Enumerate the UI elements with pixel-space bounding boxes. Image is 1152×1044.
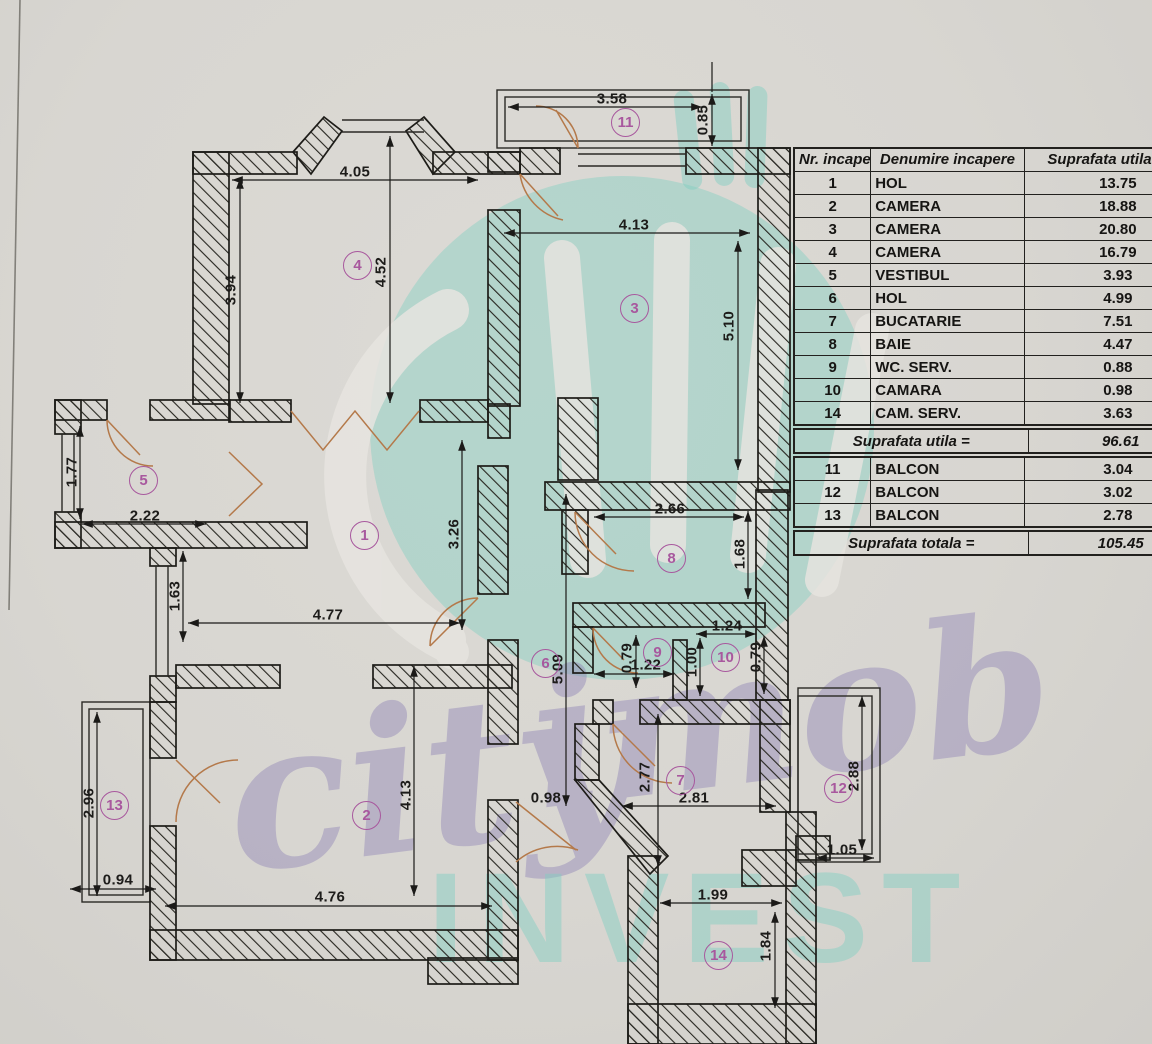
room-nr: 4 xyxy=(794,241,871,264)
dim-label: 1.84 xyxy=(758,931,775,961)
table-row: 1 HOL 13.75 xyxy=(794,172,1152,195)
room-name: HOL xyxy=(871,287,1024,310)
dim-label: 0.85 xyxy=(695,105,712,135)
room-number-badge: 2 xyxy=(352,801,381,830)
room-area: 3.04 xyxy=(1024,457,1152,481)
room-nr: 13 xyxy=(794,504,871,528)
dim-label: 4.13 xyxy=(619,217,649,234)
dim-label: 3.26 xyxy=(446,519,463,549)
dim-label: 2.22 xyxy=(130,508,160,525)
room-nr: 1 xyxy=(794,172,871,195)
room-name: BUCATARIE xyxy=(871,310,1024,333)
area-table-main: Nr. incapere Denumire incapere Suprafata… xyxy=(793,147,1152,426)
room-number-badge: 1 xyxy=(350,521,379,550)
dim-label: 3.94 xyxy=(223,275,240,305)
room-number-badge: 4 xyxy=(343,251,372,280)
room-number-badge: 14 xyxy=(704,941,733,970)
room-number-badge: 12 xyxy=(824,774,853,803)
room-nr: 14 xyxy=(794,402,871,426)
room-number-badge: 9 xyxy=(643,638,672,667)
paper-fold-line xyxy=(9,0,20,610)
dim-label: 4.77 xyxy=(313,607,343,624)
room-nr: 11 xyxy=(794,457,871,481)
room-number-badge: 10 xyxy=(711,643,740,672)
room-nr: 12 xyxy=(794,481,871,504)
dim-label: 3.58 xyxy=(597,91,627,108)
dim-label: 1.24 xyxy=(712,618,742,635)
dim-label: 1.63 xyxy=(167,581,184,611)
table-row: 6 HOL 4.99 xyxy=(794,287,1152,310)
area-table-subtotal: Suprafata utila = 96.61 xyxy=(793,428,1152,454)
scanned-floor-plan-page: city imob INVEST xyxy=(0,0,1152,1044)
room-nr: 6 xyxy=(794,287,871,310)
room-number-badge: 8 xyxy=(657,544,686,573)
table-row: 7 BUCATARIE 7.51 xyxy=(794,310,1152,333)
table-row: 8 BAIE 4.47 xyxy=(794,333,1152,356)
room-name: BALCON xyxy=(871,481,1024,504)
room-name: WC. SERV. xyxy=(871,356,1024,379)
room-name: CAMERA xyxy=(871,195,1024,218)
table-row: 2 CAMERA 18.88 xyxy=(794,195,1152,218)
subtotal-value: 96.61 xyxy=(1028,429,1152,453)
room-area: 7.51 xyxy=(1024,310,1152,333)
room-number-badge: 11 xyxy=(611,108,640,137)
area-table-total: Suprafata totala = 105.45 xyxy=(793,530,1152,556)
room-area: 3.93 xyxy=(1024,264,1152,287)
room-area: 13.75 xyxy=(1024,172,1152,195)
room-number-badge: 3 xyxy=(620,294,649,323)
dim-label: 0.94 xyxy=(103,872,133,889)
dim-label: 0.98 xyxy=(531,790,561,807)
col-header-area: Suprafata utila [mp] xyxy=(1024,148,1152,172)
room-area: 4.99 xyxy=(1024,287,1152,310)
room-nr: 10 xyxy=(794,379,871,402)
room-area: 4.47 xyxy=(1024,333,1152,356)
room-area: 0.88 xyxy=(1024,356,1152,379)
room-name: CAMARA xyxy=(871,379,1024,402)
col-header-name: Denumire incapere xyxy=(871,148,1024,172)
dim-label: 4.13 xyxy=(398,780,415,810)
table-row: 11 BALCON 3.04 xyxy=(794,457,1152,481)
area-table-balconies: 11 BALCON 3.04 12 BALCON 3.02 13 BALCON … xyxy=(793,456,1152,528)
room-name: HOL xyxy=(871,172,1024,195)
room-name: BALCON xyxy=(871,504,1024,528)
dim-label: 4.76 xyxy=(315,889,345,906)
total-value: 105.45 xyxy=(1028,531,1152,555)
room-nr: 7 xyxy=(794,310,871,333)
subtotal-label: Suprafata utila = xyxy=(794,429,1028,453)
room-nr: 9 xyxy=(794,356,871,379)
room-nr: 3 xyxy=(794,218,871,241)
table-row: 3 CAMERA 20.80 xyxy=(794,218,1152,241)
table-row: 9 WC. SERV. 0.88 xyxy=(794,356,1152,379)
dim-label: 5.10 xyxy=(721,311,738,341)
table-row: 12 BALCON 3.02 xyxy=(794,481,1152,504)
dim-label: 1.68 xyxy=(732,539,749,569)
room-number-badge: 13 xyxy=(100,791,129,820)
room-nr: 5 xyxy=(794,264,871,287)
table-row: 13 BALCON 2.78 xyxy=(794,504,1152,528)
table-row: 14 CAM. SERV. 3.63 xyxy=(794,402,1152,426)
room-name: BAIE xyxy=(871,333,1024,356)
dim-label: 1.05 xyxy=(827,842,857,859)
table-row: 10 CAMARA 0.98 xyxy=(794,379,1152,402)
dim-label: 1.99 xyxy=(698,887,728,904)
room-number-badge: 7 xyxy=(666,766,695,795)
room-name: CAM. SERV. xyxy=(871,402,1024,426)
col-header-nr: Nr. incapere xyxy=(794,148,871,172)
total-label: Suprafata totala = xyxy=(794,531,1028,555)
room-area: 3.02 xyxy=(1024,481,1152,504)
dim-label: 1.00 xyxy=(684,647,701,677)
room-name: VESTIBUL xyxy=(871,264,1024,287)
dim-label: 4.52 xyxy=(373,257,390,287)
room-name: CAMERA xyxy=(871,241,1024,264)
dim-label: 2.77 xyxy=(637,762,654,792)
dim-label: 4.05 xyxy=(340,164,370,181)
table-row: 5 VESTIBUL 3.93 xyxy=(794,264,1152,287)
room-number-badge: 6 xyxy=(531,649,560,678)
room-number-badge: 5 xyxy=(129,466,158,495)
dim-label: 2.66 xyxy=(655,501,685,518)
room-area: 20.80 xyxy=(1024,218,1152,241)
room-nr: 8 xyxy=(794,333,871,356)
room-area: 2.78 xyxy=(1024,504,1152,528)
room-area: 0.98 xyxy=(1024,379,1152,402)
room-area: 18.88 xyxy=(1024,195,1152,218)
room-area-table: Nr. incapere Denumire incapere Suprafata… xyxy=(793,147,1152,556)
dim-label: 0.79 xyxy=(748,642,765,672)
room-name: BALCON xyxy=(871,457,1024,481)
room-nr: 2 xyxy=(794,195,871,218)
room-area: 3.63 xyxy=(1024,402,1152,426)
dim-label: 1.77 xyxy=(64,457,81,487)
room-name: CAMERA xyxy=(871,218,1024,241)
table-row: 4 CAMERA 16.79 xyxy=(794,241,1152,264)
dim-label: 2.96 xyxy=(81,788,98,818)
room-area: 16.79 xyxy=(1024,241,1152,264)
